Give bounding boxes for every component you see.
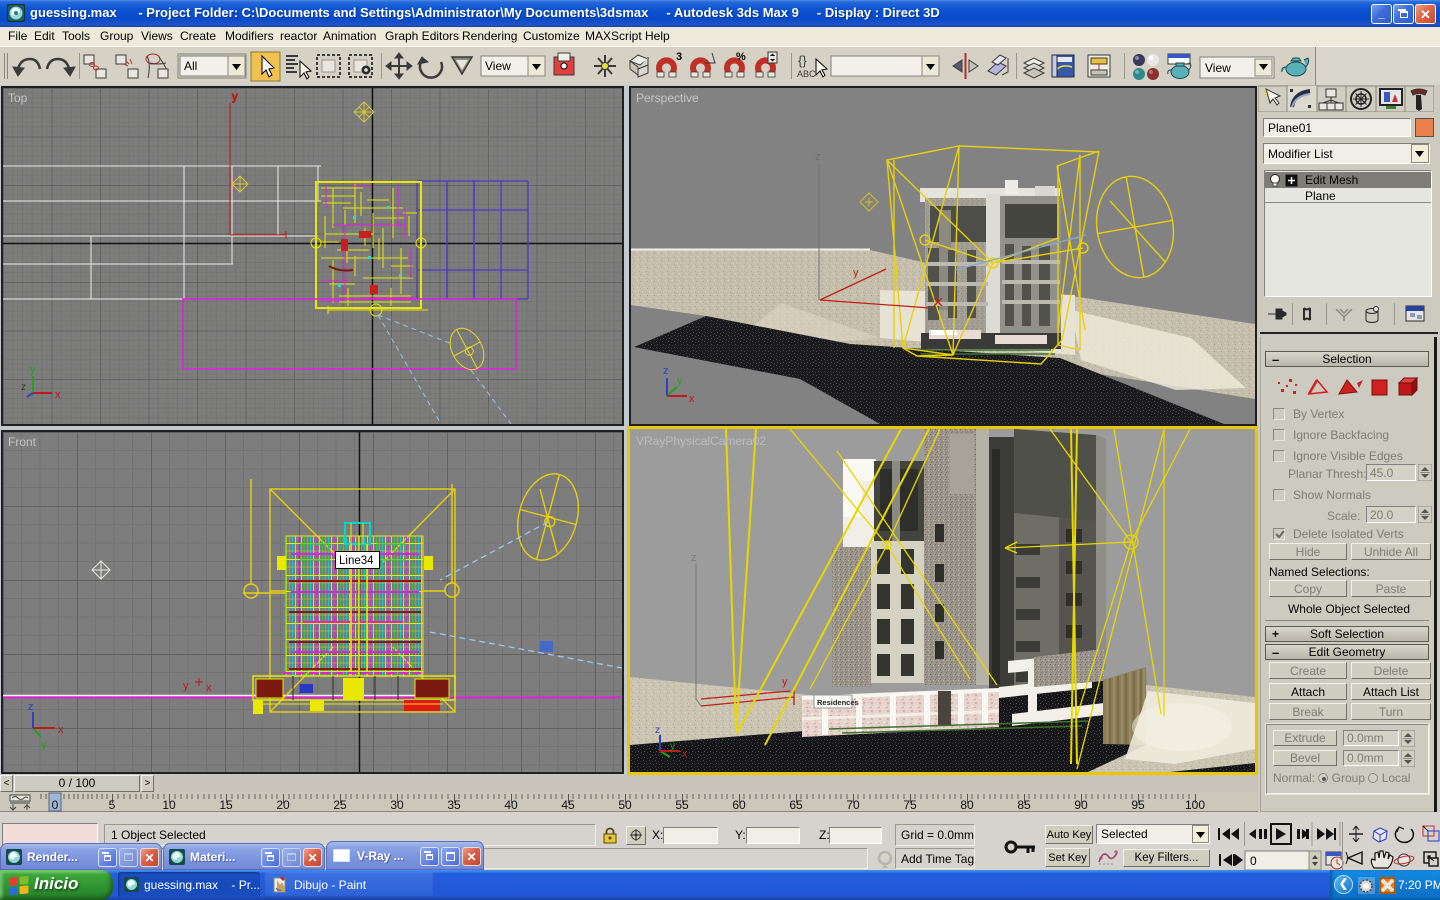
svg-text:y: y bbox=[232, 91, 238, 103]
svg-text:y: y bbox=[677, 375, 683, 387]
svg-text:70: 70 bbox=[846, 798, 860, 812]
svg-text:%: % bbox=[736, 51, 746, 63]
svg-text:x: x bbox=[689, 393, 695, 405]
svg-text:30: 30 bbox=[390, 798, 404, 812]
svg-text:Residences: Residences bbox=[817, 698, 859, 707]
svg-text:Front: Front bbox=[8, 435, 37, 449]
svg-text:10: 10 bbox=[162, 798, 176, 812]
svg-text:Top: Top bbox=[8, 91, 28, 105]
svg-text:ABC: ABC bbox=[797, 69, 816, 79]
svg-text:90: 90 bbox=[1074, 798, 1088, 812]
svg-text:40: 40 bbox=[504, 798, 518, 812]
svg-text:z: z bbox=[28, 701, 34, 713]
svg-text:y: y bbox=[853, 267, 859, 279]
svg-text:100: 100 bbox=[1185, 798, 1205, 812]
svg-text:75: 75 bbox=[903, 798, 917, 812]
svg-text:0: 0 bbox=[1250, 854, 1257, 868]
svg-text:80: 80 bbox=[960, 798, 974, 812]
svg-text:z: z bbox=[815, 151, 821, 163]
svg-text:All: All bbox=[184, 59, 197, 73]
svg-text:z: z bbox=[691, 552, 697, 564]
svg-text:y: y bbox=[41, 739, 47, 751]
svg-text:95: 95 bbox=[1131, 798, 1145, 812]
svg-text:y: y bbox=[30, 364, 36, 376]
svg-text:0: 0 bbox=[52, 798, 59, 812]
svg-text:x: x bbox=[682, 749, 687, 760]
svg-text:Perspective: Perspective bbox=[636, 91, 699, 105]
svg-text:5: 5 bbox=[109, 798, 116, 812]
svg-text:View: View bbox=[1205, 61, 1231, 75]
svg-text:85: 85 bbox=[1017, 798, 1031, 812]
svg-text:VRayPhysicalCamera02: VRayPhysicalCamera02 bbox=[636, 434, 766, 448]
svg-text:z: z bbox=[663, 365, 669, 377]
svg-text:35: 35 bbox=[447, 798, 461, 812]
svg-text:3: 3 bbox=[676, 51, 682, 63]
svg-text:x: x bbox=[55, 389, 61, 401]
svg-text:x: x bbox=[58, 724, 64, 736]
svg-text:65: 65 bbox=[789, 798, 803, 812]
svg-text:55: 55 bbox=[675, 798, 689, 812]
svg-text:View: View bbox=[485, 59, 511, 73]
svg-text:45: 45 bbox=[561, 798, 575, 812]
svg-text:60: 60 bbox=[732, 798, 746, 812]
svg-text:20: 20 bbox=[276, 798, 290, 812]
svg-text:y: y bbox=[782, 676, 788, 688]
svg-text:50: 50 bbox=[618, 798, 632, 812]
svg-text:25: 25 bbox=[333, 798, 347, 812]
svg-text:Line34: Line34 bbox=[339, 555, 374, 567]
svg-text:z: z bbox=[655, 725, 660, 736]
svg-text:x: x bbox=[206, 682, 212, 694]
svg-text:y: y bbox=[183, 680, 189, 692]
svg-text:y: y bbox=[670, 741, 675, 752]
svg-text:z: z bbox=[21, 382, 26, 393]
svg-text:{}: {} bbox=[798, 53, 807, 68]
svg-text:15: 15 bbox=[219, 798, 233, 812]
